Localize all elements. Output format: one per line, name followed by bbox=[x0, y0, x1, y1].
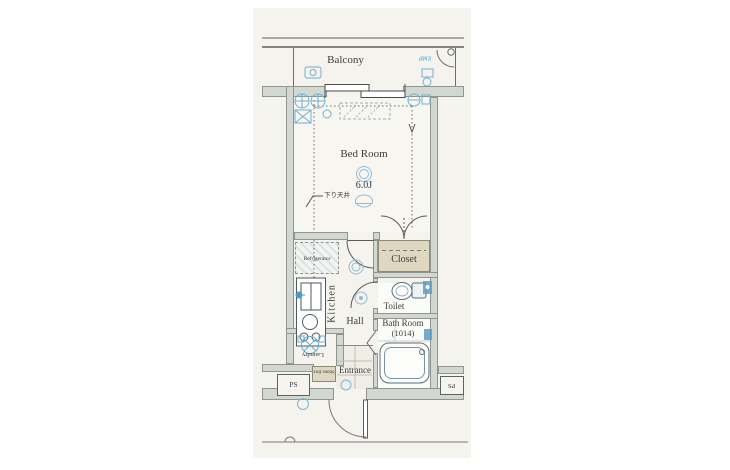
balcony-label: Balcony bbox=[303, 55, 388, 67]
shoes-box-label: Shoes Box bbox=[313, 368, 335, 373]
emp-panel-icon bbox=[422, 69, 433, 86]
bedroom-door-swing-icon bbox=[347, 241, 374, 269]
hall-label: Hall bbox=[338, 317, 372, 328]
toilet-label: Toilet bbox=[376, 302, 412, 311]
site-boundary-lines bbox=[262, 38, 464, 47]
toilet-corner-unit-icon bbox=[423, 281, 432, 294]
sliding-window-icon bbox=[325, 84, 405, 98]
bedroom-size-label: 6.0J bbox=[330, 181, 398, 192]
entrance-door-swing-icon bbox=[329, 400, 368, 438]
laundry-label: Laundry bbox=[295, 350, 331, 357]
lowered-ceiling-note: 下り天井 bbox=[324, 192, 364, 199]
balcony-hatch-door-icon bbox=[437, 49, 454, 67]
balcony-light-icon bbox=[305, 67, 321, 78]
entrance-label: Entrance bbox=[333, 366, 377, 375]
entrance-outlet-icons bbox=[298, 380, 352, 410]
closet-folding-doors-icon bbox=[381, 216, 427, 239]
emp-label: EMP bbox=[417, 54, 433, 60]
ceiling-line-arrow bbox=[409, 124, 415, 132]
ac-unit-icon bbox=[340, 103, 390, 119]
bathtub-icon bbox=[380, 343, 429, 383]
bedroom-fan-cluster-icon bbox=[295, 94, 331, 123]
closet-label: Closet bbox=[380, 255, 428, 266]
toilet-fixture-icon bbox=[392, 283, 426, 300]
bathroom-size-label: (1014) bbox=[375, 329, 431, 338]
refrigerator-label: Refrigerator bbox=[294, 257, 340, 263]
plan-linework bbox=[0, 0, 730, 470]
floor-plan-canvas: PS PS bbox=[0, 0, 730, 470]
bedroom-label: Bed Room bbox=[320, 149, 408, 161]
bedroom-corner-fixture-icon bbox=[408, 94, 430, 106]
toilet-door-swing-icon bbox=[351, 282, 377, 308]
